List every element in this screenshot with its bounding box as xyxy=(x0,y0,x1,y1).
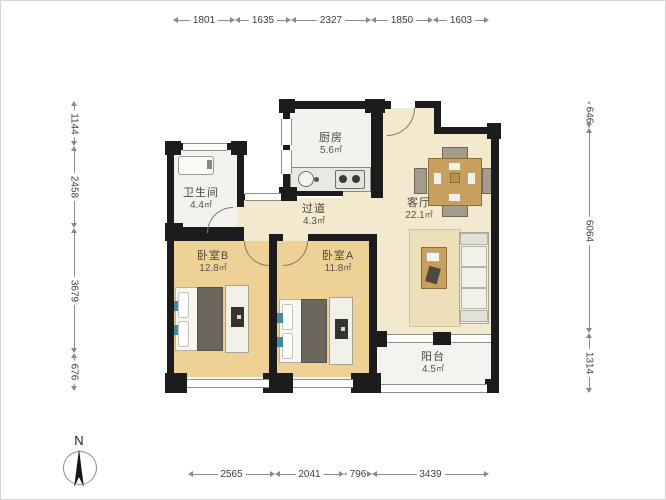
room-label-balcony: 阳台 4.5㎡ xyxy=(398,351,468,375)
dim-segment-left-1: 2458 xyxy=(66,146,82,228)
north-label: N xyxy=(59,433,99,448)
wall xyxy=(491,127,499,393)
dining-chair xyxy=(414,168,427,194)
wall-pier xyxy=(231,141,247,155)
wall-pier xyxy=(369,331,387,347)
dim-segment-bottom-3: 3439 xyxy=(372,466,489,482)
wall-pier xyxy=(165,223,183,241)
window xyxy=(183,143,227,151)
dim-segment-bottom-2: 796 xyxy=(344,466,372,482)
wall xyxy=(269,241,277,377)
dim-value: 2458 xyxy=(69,173,80,201)
dim-value: 796 xyxy=(347,468,370,481)
pillow xyxy=(282,304,293,330)
dim-segment-top-0: 1801 xyxy=(173,12,235,28)
faucet-icon xyxy=(314,177,319,182)
window xyxy=(187,379,269,388)
window xyxy=(381,384,487,393)
wall xyxy=(269,234,283,241)
room-area: 5.6㎡ xyxy=(296,145,366,157)
dim-segment-left-3: 676 xyxy=(66,353,82,391)
dim-value: 3679 xyxy=(69,276,80,304)
dim-value: 1635 xyxy=(249,14,277,27)
room-area: 11.8㎡ xyxy=(303,263,373,275)
window xyxy=(281,150,292,174)
sofa-cushion xyxy=(461,267,487,288)
wardrobe-knob xyxy=(341,327,345,331)
floor-kitchen-entry xyxy=(343,192,371,198)
window xyxy=(281,119,292,145)
wall-pier xyxy=(279,187,297,201)
window xyxy=(387,334,433,343)
dim-segment-left-0: 1144 xyxy=(66,101,82,146)
plate xyxy=(467,172,476,185)
room-area: 4.3㎡ xyxy=(279,216,349,228)
wall xyxy=(308,234,377,241)
room-label-bedroom-a: 卧室A 11.8㎡ xyxy=(303,250,373,274)
dim-value: 2565 xyxy=(217,468,245,481)
floorplan-image: 1801 1635 2327 1850 1603 2565 2041 796 3… xyxy=(0,0,666,500)
burner-icon xyxy=(339,175,347,183)
duvet xyxy=(197,287,223,351)
room-name: 客厅 xyxy=(384,197,454,210)
duvet xyxy=(301,299,327,363)
room-area: 4.5㎡ xyxy=(398,364,468,376)
pillow xyxy=(178,292,189,318)
sofa-armrest xyxy=(460,233,488,245)
dim-value: 676 xyxy=(69,361,80,384)
room-area: 12.8㎡ xyxy=(178,263,248,275)
wall xyxy=(167,143,174,391)
dim-value: 6064 xyxy=(584,216,595,244)
sofa-cushion xyxy=(461,246,487,267)
wall xyxy=(371,101,383,198)
dim-value: 1603 xyxy=(447,14,475,27)
wall-pier xyxy=(351,373,381,393)
wall-pier xyxy=(485,379,499,393)
wall-pier xyxy=(165,373,187,393)
room-label-kitchen: 厨房 5.6㎡ xyxy=(296,132,366,156)
room-name: 阳台 xyxy=(398,351,468,364)
dim-segment-right-0: 646 xyxy=(581,101,597,128)
sofa-armrest xyxy=(460,310,488,322)
north-compass-icon: N xyxy=(59,433,99,489)
window xyxy=(245,193,281,201)
kitchen-sink-icon xyxy=(298,171,314,187)
dim-value: 646 xyxy=(584,103,595,126)
wall-pier xyxy=(487,123,501,139)
room-label-living: 客厅 22.1㎡ xyxy=(384,197,454,221)
wall xyxy=(297,191,343,196)
dim-segment-bottom-1: 2041 xyxy=(275,466,344,482)
room-label-bathroom: 卫生间 4.4㎡ xyxy=(166,187,236,211)
pillow xyxy=(178,321,189,347)
wardrobe-knob xyxy=(237,315,241,319)
dim-segment-top-4: 1603 xyxy=(433,12,489,28)
room-name: 厨房 xyxy=(296,132,366,145)
plate xyxy=(448,162,461,171)
dim-segment-left-2: 3679 xyxy=(66,228,82,353)
dim-value: 1314 xyxy=(584,349,595,377)
dim-segment-top-3: 1850 xyxy=(371,12,433,28)
room-name: 过道 xyxy=(279,203,349,216)
throw-decor xyxy=(277,337,283,347)
coffee-table-tray xyxy=(426,252,440,262)
dim-segment-top-2: 2327 xyxy=(291,12,371,28)
wall-pier xyxy=(433,332,451,345)
burner-icon xyxy=(352,175,360,183)
table-centerpiece xyxy=(450,173,460,183)
window xyxy=(293,379,353,388)
dim-value: 3439 xyxy=(416,468,444,481)
dim-segment-right-2: 1314 xyxy=(581,333,597,393)
faucet-icon xyxy=(207,160,212,169)
dim-value: 1144 xyxy=(69,110,80,138)
room-name: 卧室A xyxy=(303,250,373,263)
room-area: 4.4㎡ xyxy=(166,200,236,212)
plate xyxy=(433,172,442,185)
wall-pier xyxy=(279,99,295,113)
dim-segment-right-1: 6064 xyxy=(581,128,597,333)
room-name: 卫生间 xyxy=(166,187,236,200)
pillow xyxy=(282,333,293,359)
throw-decor xyxy=(277,313,283,323)
room-area: 22.1㎡ xyxy=(384,210,454,222)
dim-value: 1850 xyxy=(388,14,416,27)
sofa-cushion xyxy=(461,288,487,309)
room-label-hallway: 过道 4.3㎡ xyxy=(279,203,349,227)
room-name: 卧室B xyxy=(178,250,248,263)
wall-pier xyxy=(365,99,385,113)
dim-segment-bottom-0: 2565 xyxy=(188,466,275,482)
wall-pier xyxy=(165,141,181,155)
dim-segment-top-1: 1635 xyxy=(235,12,291,28)
dim-value: 2041 xyxy=(295,468,323,481)
room-label-bedroom-b: 卧室B 12.8㎡ xyxy=(178,250,248,274)
dim-value: 1801 xyxy=(190,14,218,27)
window xyxy=(451,334,491,343)
dim-value: 2327 xyxy=(317,14,345,27)
